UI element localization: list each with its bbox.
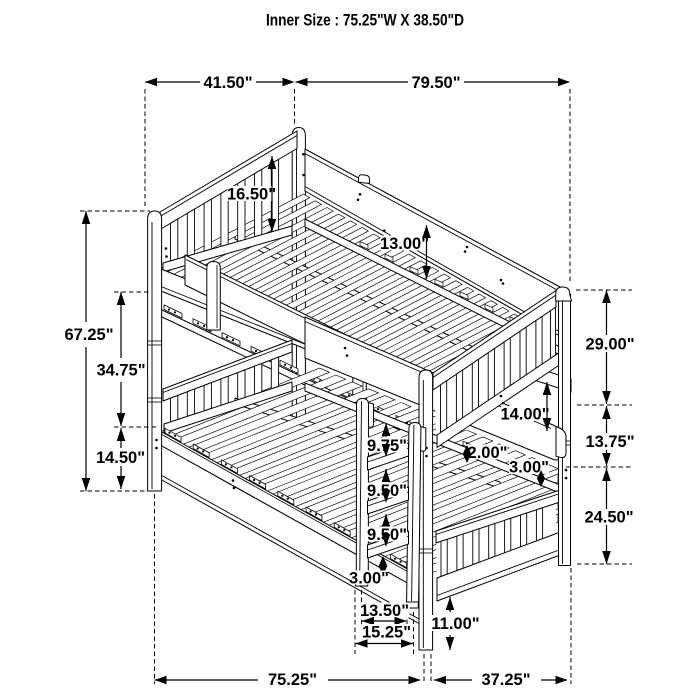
svg-text:67.25": 67.25" bbox=[64, 326, 113, 344]
svg-text:75.25": 75.25" bbox=[268, 671, 317, 689]
svg-text:2.00": 2.00" bbox=[468, 444, 508, 462]
svg-text:3.00": 3.00" bbox=[509, 458, 549, 476]
svg-text:15.25": 15.25" bbox=[362, 623, 411, 641]
svg-text:29.00": 29.00" bbox=[585, 335, 634, 353]
svg-text:Inner Size : 75.25"W X 38.50": Inner Size : 75.25"W X 38.50"D bbox=[266, 12, 464, 30]
svg-text:11.00": 11.00" bbox=[431, 615, 479, 633]
svg-text:16.50": 16.50" bbox=[227, 185, 276, 203]
svg-text:37.25": 37.25" bbox=[481, 671, 530, 689]
svg-text:79.50": 79.50" bbox=[411, 74, 460, 92]
svg-text:13.50": 13.50" bbox=[360, 602, 409, 620]
svg-text:13.00": 13.00" bbox=[380, 235, 429, 253]
svg-text:24.50": 24.50" bbox=[584, 508, 633, 526]
svg-text:34.75": 34.75" bbox=[96, 361, 145, 379]
svg-text:3.00": 3.00" bbox=[349, 569, 389, 587]
svg-text:14.00": 14.00" bbox=[500, 405, 549, 423]
svg-text:13.75": 13.75" bbox=[585, 433, 634, 451]
svg-text:14.50": 14.50" bbox=[96, 449, 145, 467]
svg-text:41.50": 41.50" bbox=[203, 74, 252, 92]
